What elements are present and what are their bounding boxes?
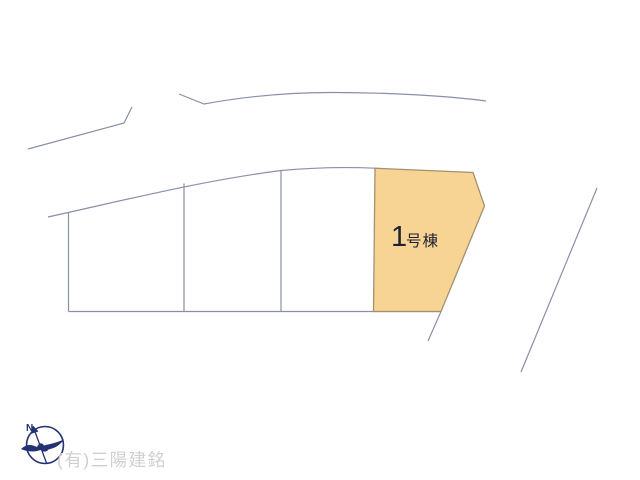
lot-1-label-suffix: 号棟: [406, 232, 439, 250]
lot-1-slant-extension: [428, 312, 441, 342]
site-plan-drawing: 1 号棟 N (有)三陽建銘: [0, 0, 640, 480]
lot-1-label-number: 1: [391, 221, 407, 253]
compass-north-label: N: [26, 423, 33, 434]
lot-row-top-boundary: [48, 168, 375, 217]
road-line-right-diagonal: [521, 188, 597, 372]
company-watermark: (有)三陽建銘: [57, 450, 167, 470]
site-plan: 1 号棟 N (有)三陽建銘: [0, 0, 640, 480]
road-line-upper-right: [179, 93, 486, 105]
road-line-upper-left: [28, 107, 132, 149]
